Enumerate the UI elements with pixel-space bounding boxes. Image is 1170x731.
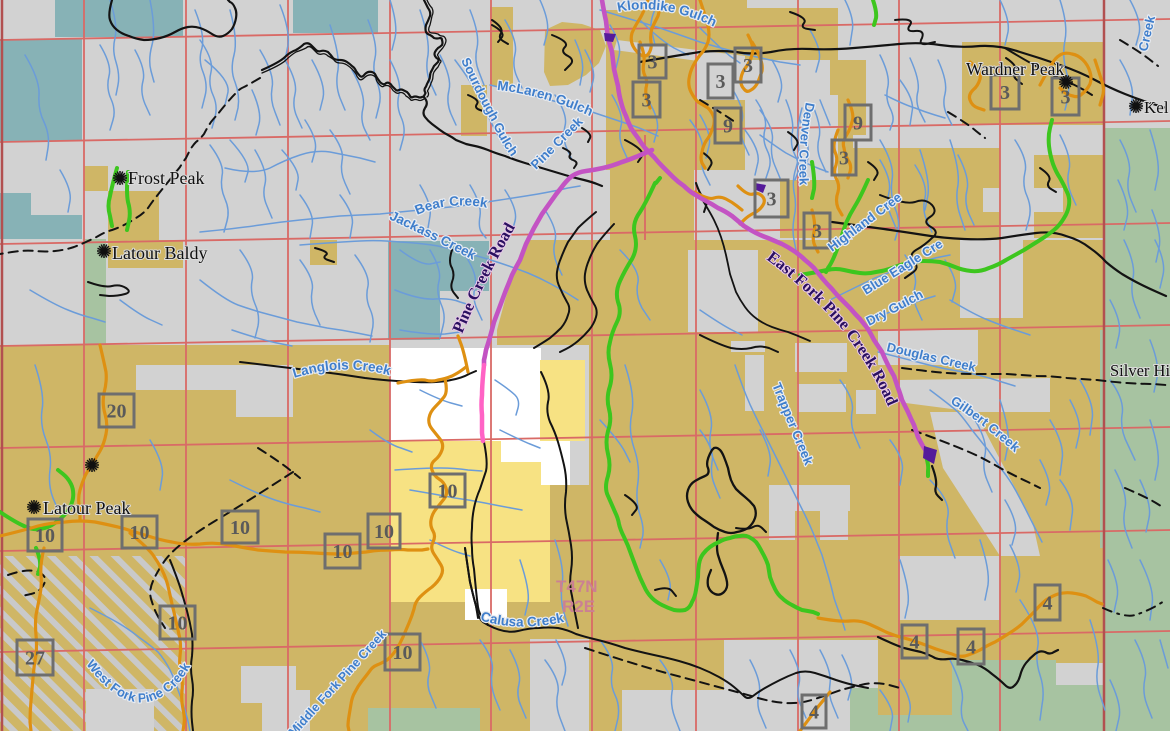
svg-text:10: 10 [333, 541, 353, 563]
svg-text:10: 10 [168, 613, 188, 635]
svg-text:3: 3 [812, 221, 822, 243]
svg-text:4: 4 [910, 632, 920, 654]
svg-text:3: 3 [642, 90, 652, 112]
svg-text:3: 3 [648, 52, 658, 74]
svg-text:4: 4 [966, 637, 976, 659]
svg-text:Wardner Peak: Wardner Peak [966, 59, 1064, 79]
svg-text:3: 3 [743, 55, 753, 77]
svg-text:Silver Hill: Silver Hill [1110, 361, 1170, 380]
svg-text:10: 10 [438, 481, 458, 503]
svg-text:Kel: Kel [1144, 98, 1169, 117]
svg-text:Frost Peak: Frost Peak [128, 168, 205, 188]
svg-text:Latour Baldy: Latour Baldy [112, 243, 207, 263]
svg-text:10: 10 [130, 522, 150, 544]
svg-text:T47N: T47N [556, 577, 598, 596]
svg-text:3: 3 [716, 71, 726, 93]
svg-text:9: 9 [723, 116, 733, 138]
svg-text:10: 10 [374, 521, 394, 543]
svg-text:3: 3 [1061, 87, 1071, 109]
svg-text:10: 10 [35, 525, 55, 547]
svg-text:3: 3 [839, 148, 849, 170]
svg-text:3: 3 [1000, 82, 1010, 104]
svg-text:R2E: R2E [562, 597, 595, 616]
svg-text:10: 10 [230, 517, 250, 539]
svg-text:20: 20 [107, 401, 127, 423]
svg-text:9: 9 [853, 113, 863, 135]
svg-text:3: 3 [767, 189, 777, 211]
svg-text:4: 4 [1043, 593, 1053, 615]
svg-text:Latour Peak: Latour Peak [43, 498, 130, 518]
svg-text:10: 10 [393, 642, 413, 664]
svg-text:27: 27 [25, 648, 45, 670]
svg-text:4: 4 [809, 702, 819, 724]
